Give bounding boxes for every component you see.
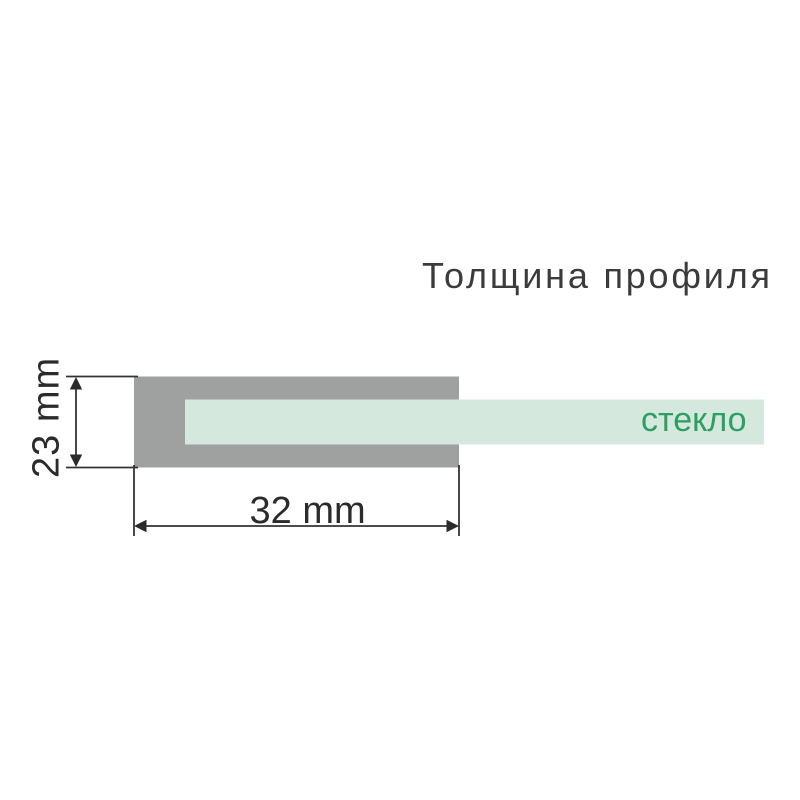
svg-text:стекло: стекло bbox=[641, 401, 747, 439]
svg-text:23 mm: 23 mm bbox=[26, 357, 68, 478]
svg-text:Толщина профиля: Толщина профиля bbox=[422, 255, 773, 296]
svg-text:32 mm: 32 mm bbox=[250, 490, 366, 532]
